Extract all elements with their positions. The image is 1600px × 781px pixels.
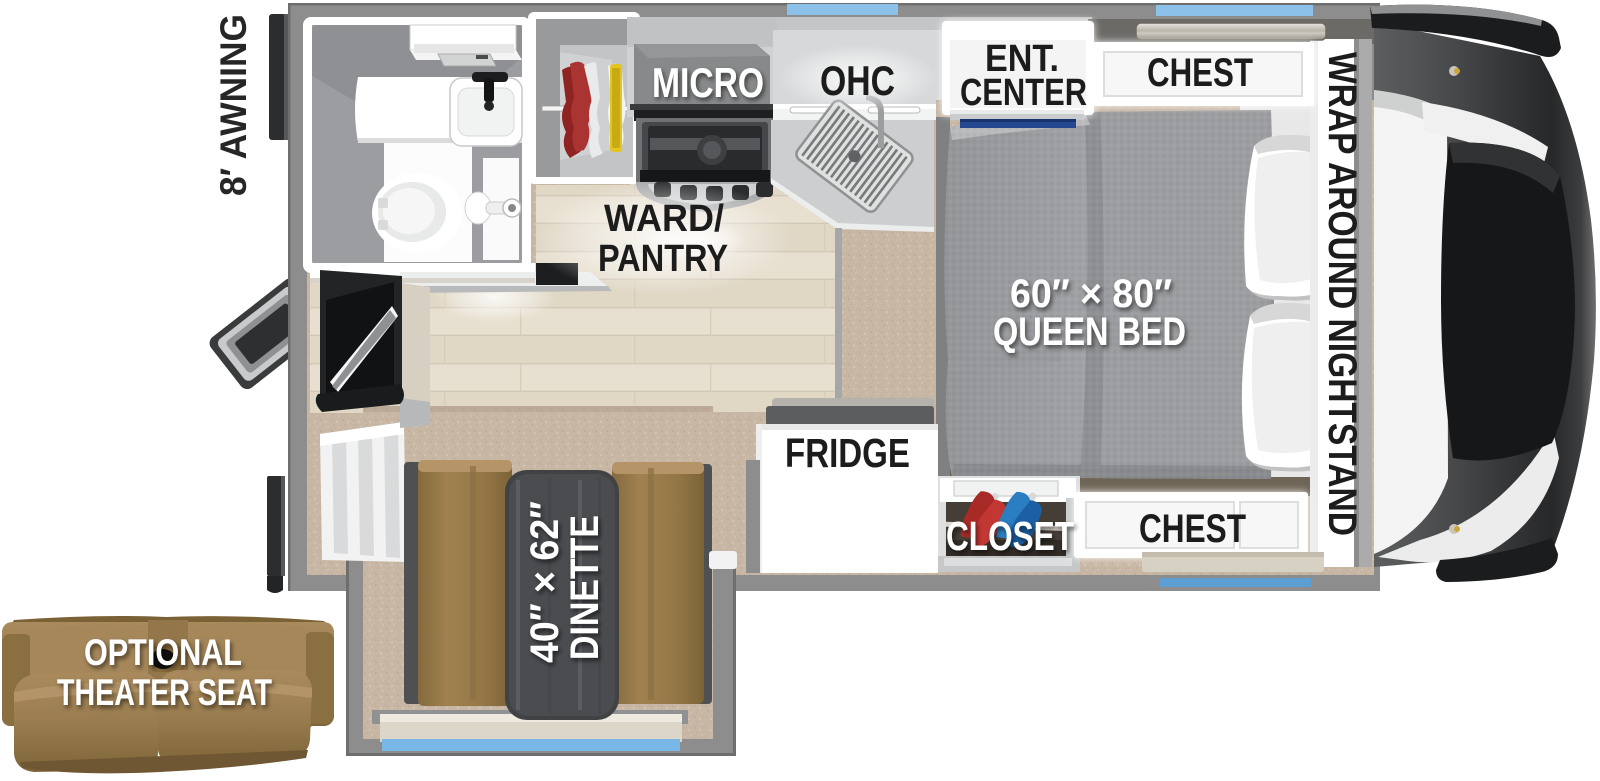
svg-text:CHEST: CHEST	[1147, 51, 1253, 95]
svg-text:QUEEN BED: QUEEN BED	[993, 310, 1186, 354]
svg-text:CLOSET: CLOSET	[946, 513, 1074, 559]
svg-text:40″ × 62″: 40″ × 62″	[523, 501, 567, 663]
svg-text:OHC: OHC	[820, 57, 895, 104]
svg-text:WARD/: WARD/	[604, 198, 724, 240]
svg-text:CENTER: CENTER	[960, 72, 1087, 114]
svg-text:WRAP AROUND NIGHTSTAND: WRAP AROUND NIGHTSTAND	[1320, 52, 1364, 536]
svg-text:MICRO: MICRO	[652, 59, 764, 106]
svg-text:THEATER SEAT: THEATER SEAT	[57, 672, 272, 713]
svg-text:DINETTE: DINETTE	[563, 515, 607, 660]
svg-text:CHEST: CHEST	[1139, 507, 1246, 551]
svg-text:PANTRY: PANTRY	[598, 238, 728, 280]
svg-text:FRIDGE: FRIDGE	[785, 430, 910, 476]
svg-text:OPTIONAL: OPTIONAL	[84, 632, 242, 673]
svg-text:8′ AWNING: 8′ AWNING	[213, 14, 254, 196]
